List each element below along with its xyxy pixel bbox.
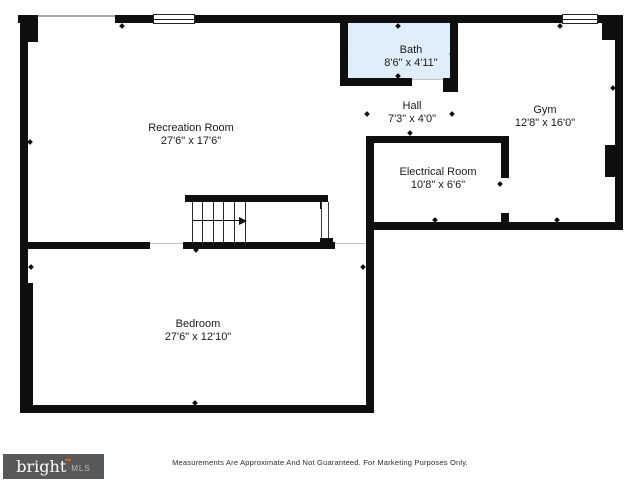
window-mullion [563, 19, 597, 20]
floorplan-page: { "plan": { "level_type": "basement-floo… [0, 0, 640, 480]
stairs-top-wall [185, 195, 328, 202]
stair-direction-arrow-head [239, 217, 247, 225]
stair-tread [202, 202, 203, 242]
room-name: Recreation Room [91, 122, 291, 135]
wall [366, 136, 508, 143]
room-dimensions: 12'8" x 16'0" [465, 117, 625, 130]
window-symbol [562, 14, 598, 24]
wall [20, 15, 28, 283]
dimension-tick [360, 264, 366, 270]
stair-tread [223, 202, 224, 242]
wall [366, 222, 623, 230]
dimension-tick [407, 130, 413, 136]
room-name: Electrical Room [358, 166, 518, 179]
stair-tread [192, 202, 193, 242]
dimension-tick [557, 23, 563, 29]
window-symbol [153, 14, 195, 24]
wall-corner-block [443, 78, 458, 92]
disclaimer-text: Measurements Are Approximate And Not Gua… [0, 458, 640, 467]
stair-direction-arrow [193, 220, 240, 221]
wall [20, 283, 33, 413]
room-label-electrical: Electrical Room 10'8" x 6'6" [358, 166, 518, 192]
stair-tread [213, 202, 214, 242]
wall [501, 213, 509, 230]
wall [340, 78, 412, 86]
wall-opening-line [38, 15, 115, 17]
door-opening-line [335, 243, 366, 244]
stairs-rail [321, 202, 329, 242]
window-mullion [154, 19, 194, 20]
room-dimensions: 10'8" x 6'6" [358, 179, 518, 192]
room-label-bedroom: Bedroom 27'6" x 12'10" [98, 318, 298, 344]
door-opening-line [150, 243, 183, 244]
floorplan-canvas: Recreation Room 27'6" x 17'6" Bath 8'6" … [0, 0, 640, 480]
door-opening-line [412, 79, 443, 80]
room-label-gym: Gym 12'8" x 16'0" [465, 104, 625, 130]
room-dimensions: 27'6" x 17'6" [91, 135, 291, 148]
room-label-bath: Bath 8'6" x 4'11" [331, 44, 491, 70]
wall [183, 242, 335, 249]
room-name: Bath [331, 44, 491, 57]
room-label-recreation: Recreation Room 27'6" x 17'6" [91, 122, 291, 148]
wall [28, 242, 150, 249]
dimension-tick [28, 264, 34, 270]
stair-tread [234, 202, 235, 242]
wall [195, 15, 562, 23]
dimension-tick [119, 23, 125, 29]
wall [115, 15, 153, 23]
room-dimensions: 8'6" x 4'11" [331, 57, 491, 70]
room-name: Bedroom [98, 318, 298, 331]
wall [20, 405, 374, 413]
room-name: Gym [465, 104, 625, 117]
room-dimensions: 27'6" x 12'10" [98, 331, 298, 344]
dimension-tick [27, 139, 33, 145]
